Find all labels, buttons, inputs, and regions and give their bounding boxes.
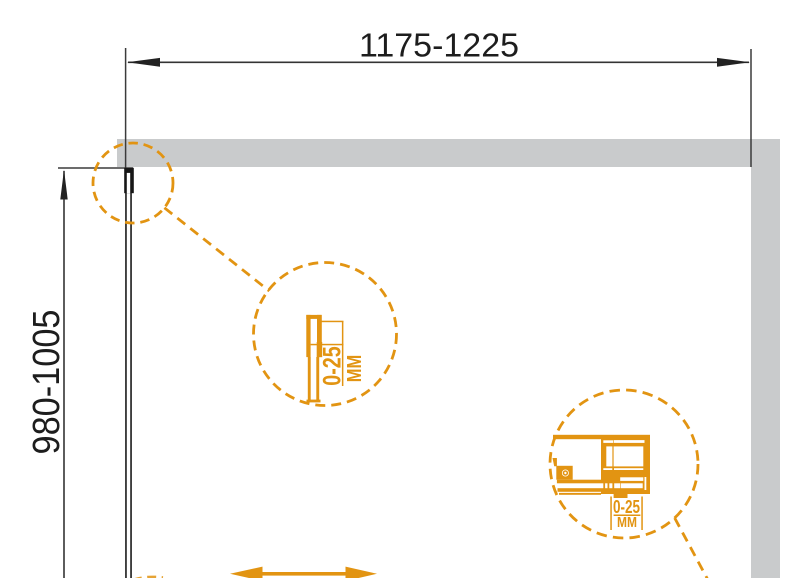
svg-text:ММ: ММ bbox=[617, 514, 637, 531]
svg-text:980-1005: 980-1005 bbox=[26, 310, 68, 455]
svg-text:1175-1225: 1175-1225 bbox=[359, 27, 519, 64]
svg-text:0-25: 0-25 bbox=[319, 346, 347, 386]
svg-text:ММ: ММ bbox=[344, 355, 366, 383]
